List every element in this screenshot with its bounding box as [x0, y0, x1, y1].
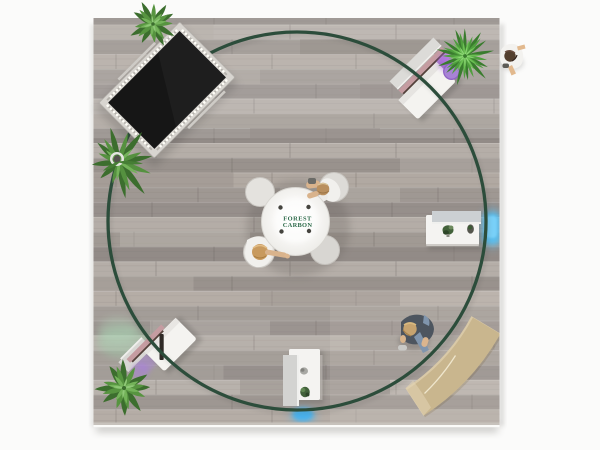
svg-text:CARBON: CARBON	[283, 222, 313, 229]
